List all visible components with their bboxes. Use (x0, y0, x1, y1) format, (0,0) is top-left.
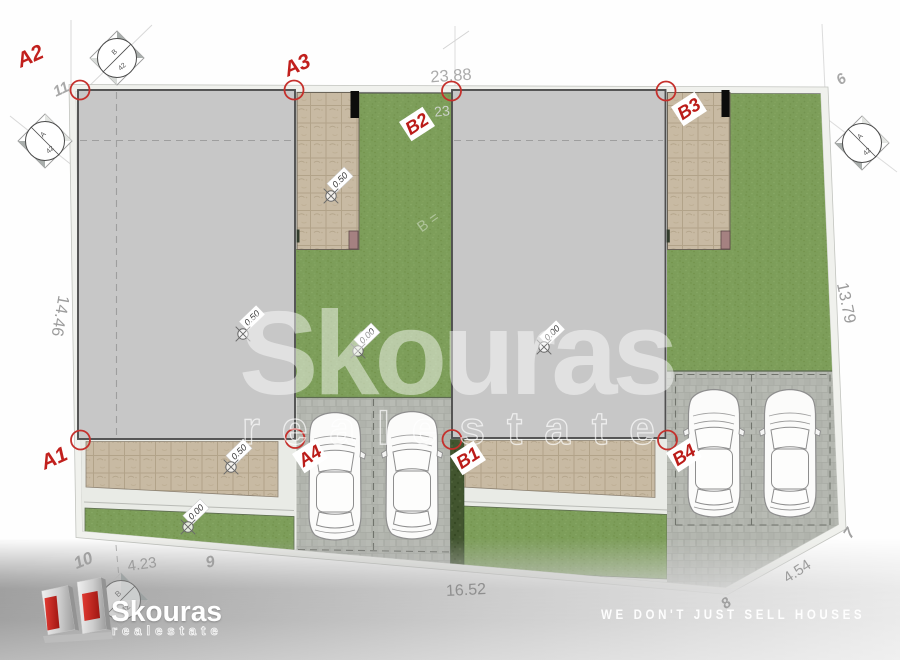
svg-text:4.23: 4.23 (126, 554, 157, 575)
svg-text:4.54: 4.54 (780, 556, 814, 586)
svg-text:16.52: 16.52 (446, 581, 487, 600)
svg-text:10: 10 (71, 548, 96, 573)
svg-text:9: 9 (204, 553, 217, 572)
svg-text:7: 7 (840, 524, 859, 541)
